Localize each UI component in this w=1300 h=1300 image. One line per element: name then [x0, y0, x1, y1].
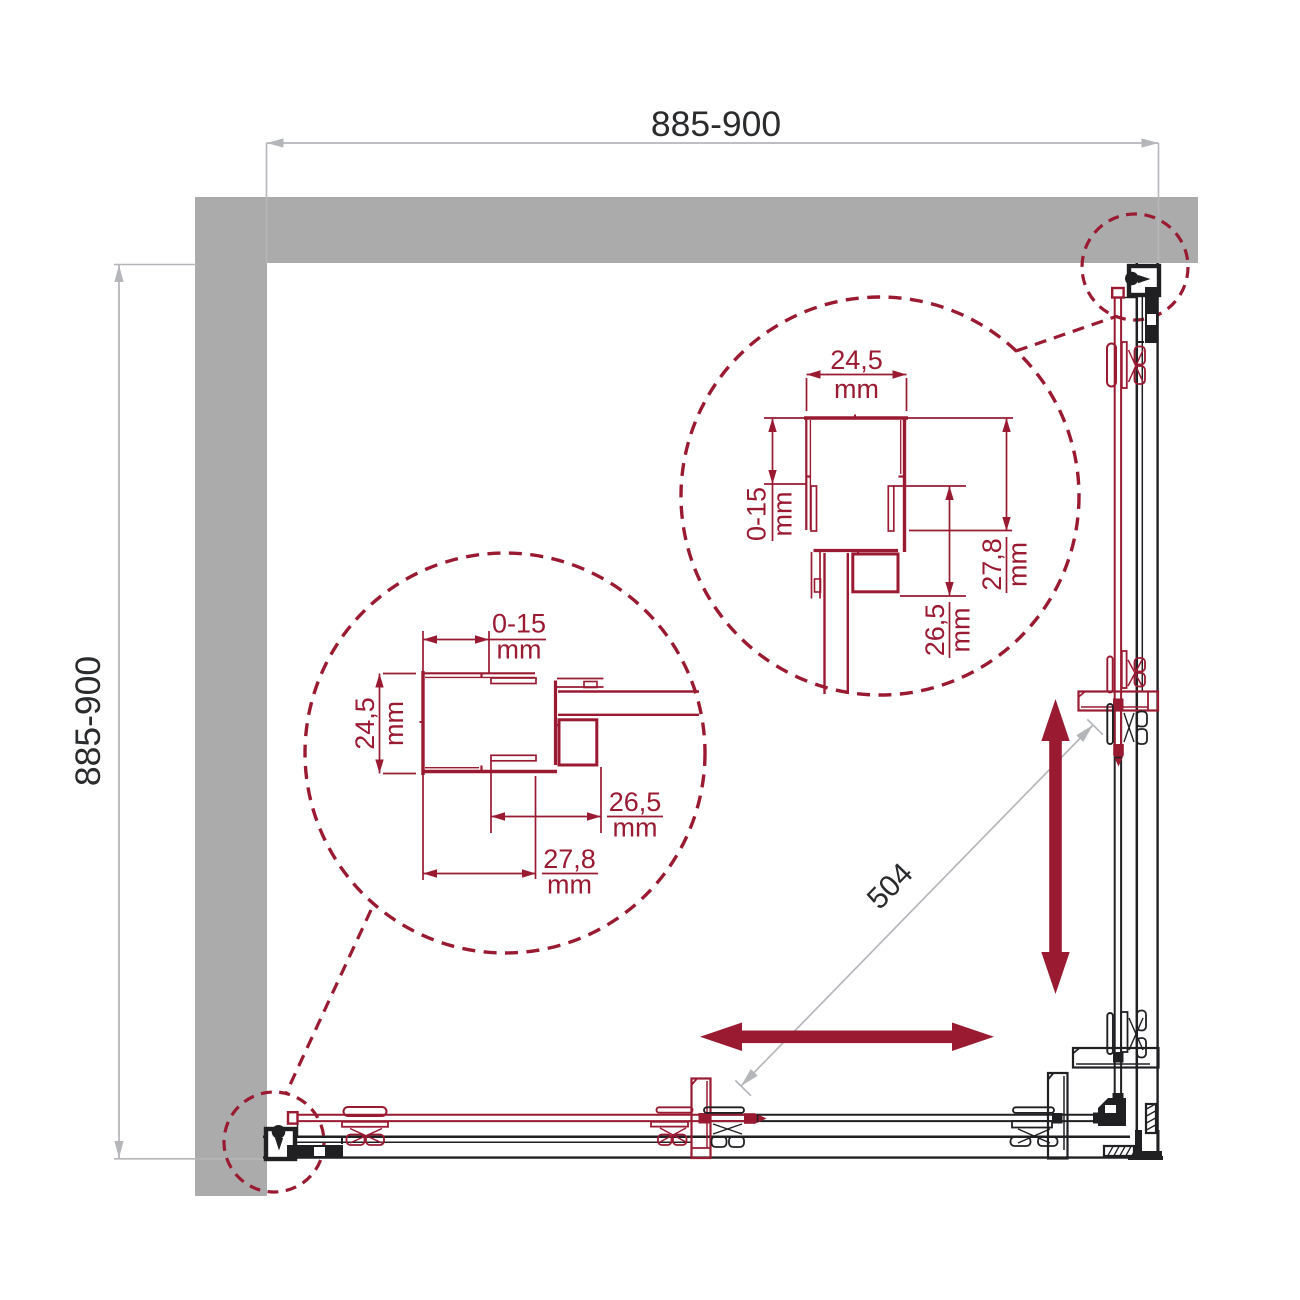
svg-text:mm: mm — [379, 701, 409, 746]
svg-text:24,5: 24,5 — [830, 345, 883, 375]
svg-text:mm: mm — [547, 870, 592, 900]
svg-text:mm: mm — [1003, 542, 1033, 587]
svg-text:mm: mm — [946, 608, 976, 653]
svg-text:885-900: 885-900 — [68, 656, 108, 786]
svg-text:mm: mm — [834, 374, 879, 404]
svg-text:mm: mm — [497, 635, 542, 665]
svg-text:mm: mm — [613, 813, 658, 843]
svg-text:885-900: 885-900 — [651, 104, 781, 144]
svg-text:24,5: 24,5 — [350, 697, 380, 750]
svg-text:mm: mm — [768, 492, 798, 537]
